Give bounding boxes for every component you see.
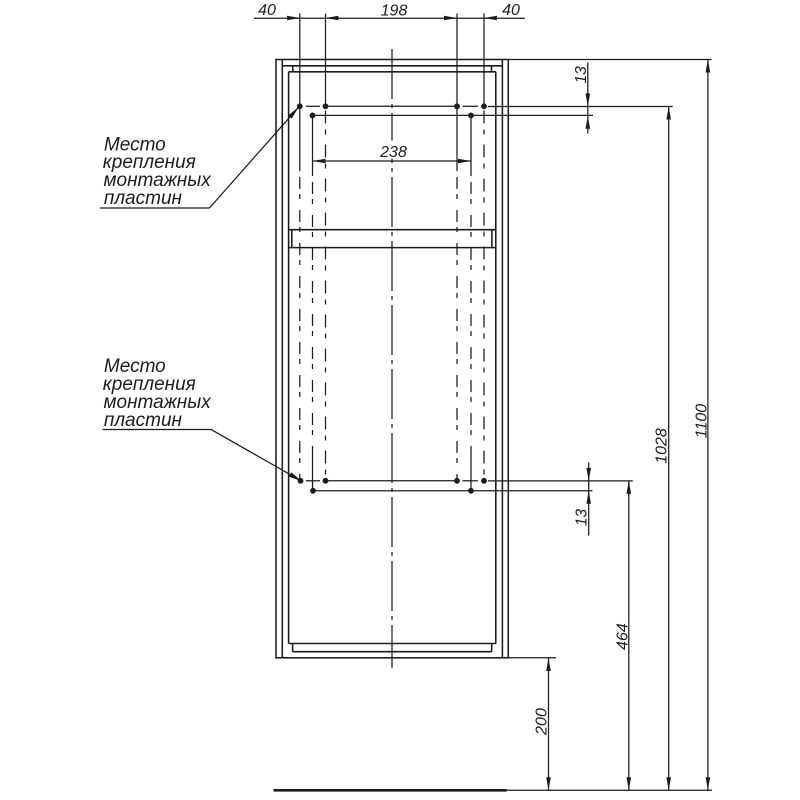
svg-text:1100: 1100 [693, 404, 710, 439]
svg-text:238: 238 [379, 144, 407, 161]
svg-text:1028: 1028 [653, 428, 670, 464]
svg-text:13: 13 [573, 66, 590, 84]
svg-text:13: 13 [573, 509, 590, 527]
svg-text:198: 198 [381, 2, 408, 19]
svg-text:пластин: пластин [104, 188, 183, 209]
svg-text:40: 40 [258, 2, 276, 19]
svg-text:464: 464 [615, 623, 632, 650]
svg-text:40: 40 [502, 2, 520, 19]
svg-text:пластин: пластин [104, 410, 183, 431]
svg-text:200: 200 [534, 708, 551, 736]
